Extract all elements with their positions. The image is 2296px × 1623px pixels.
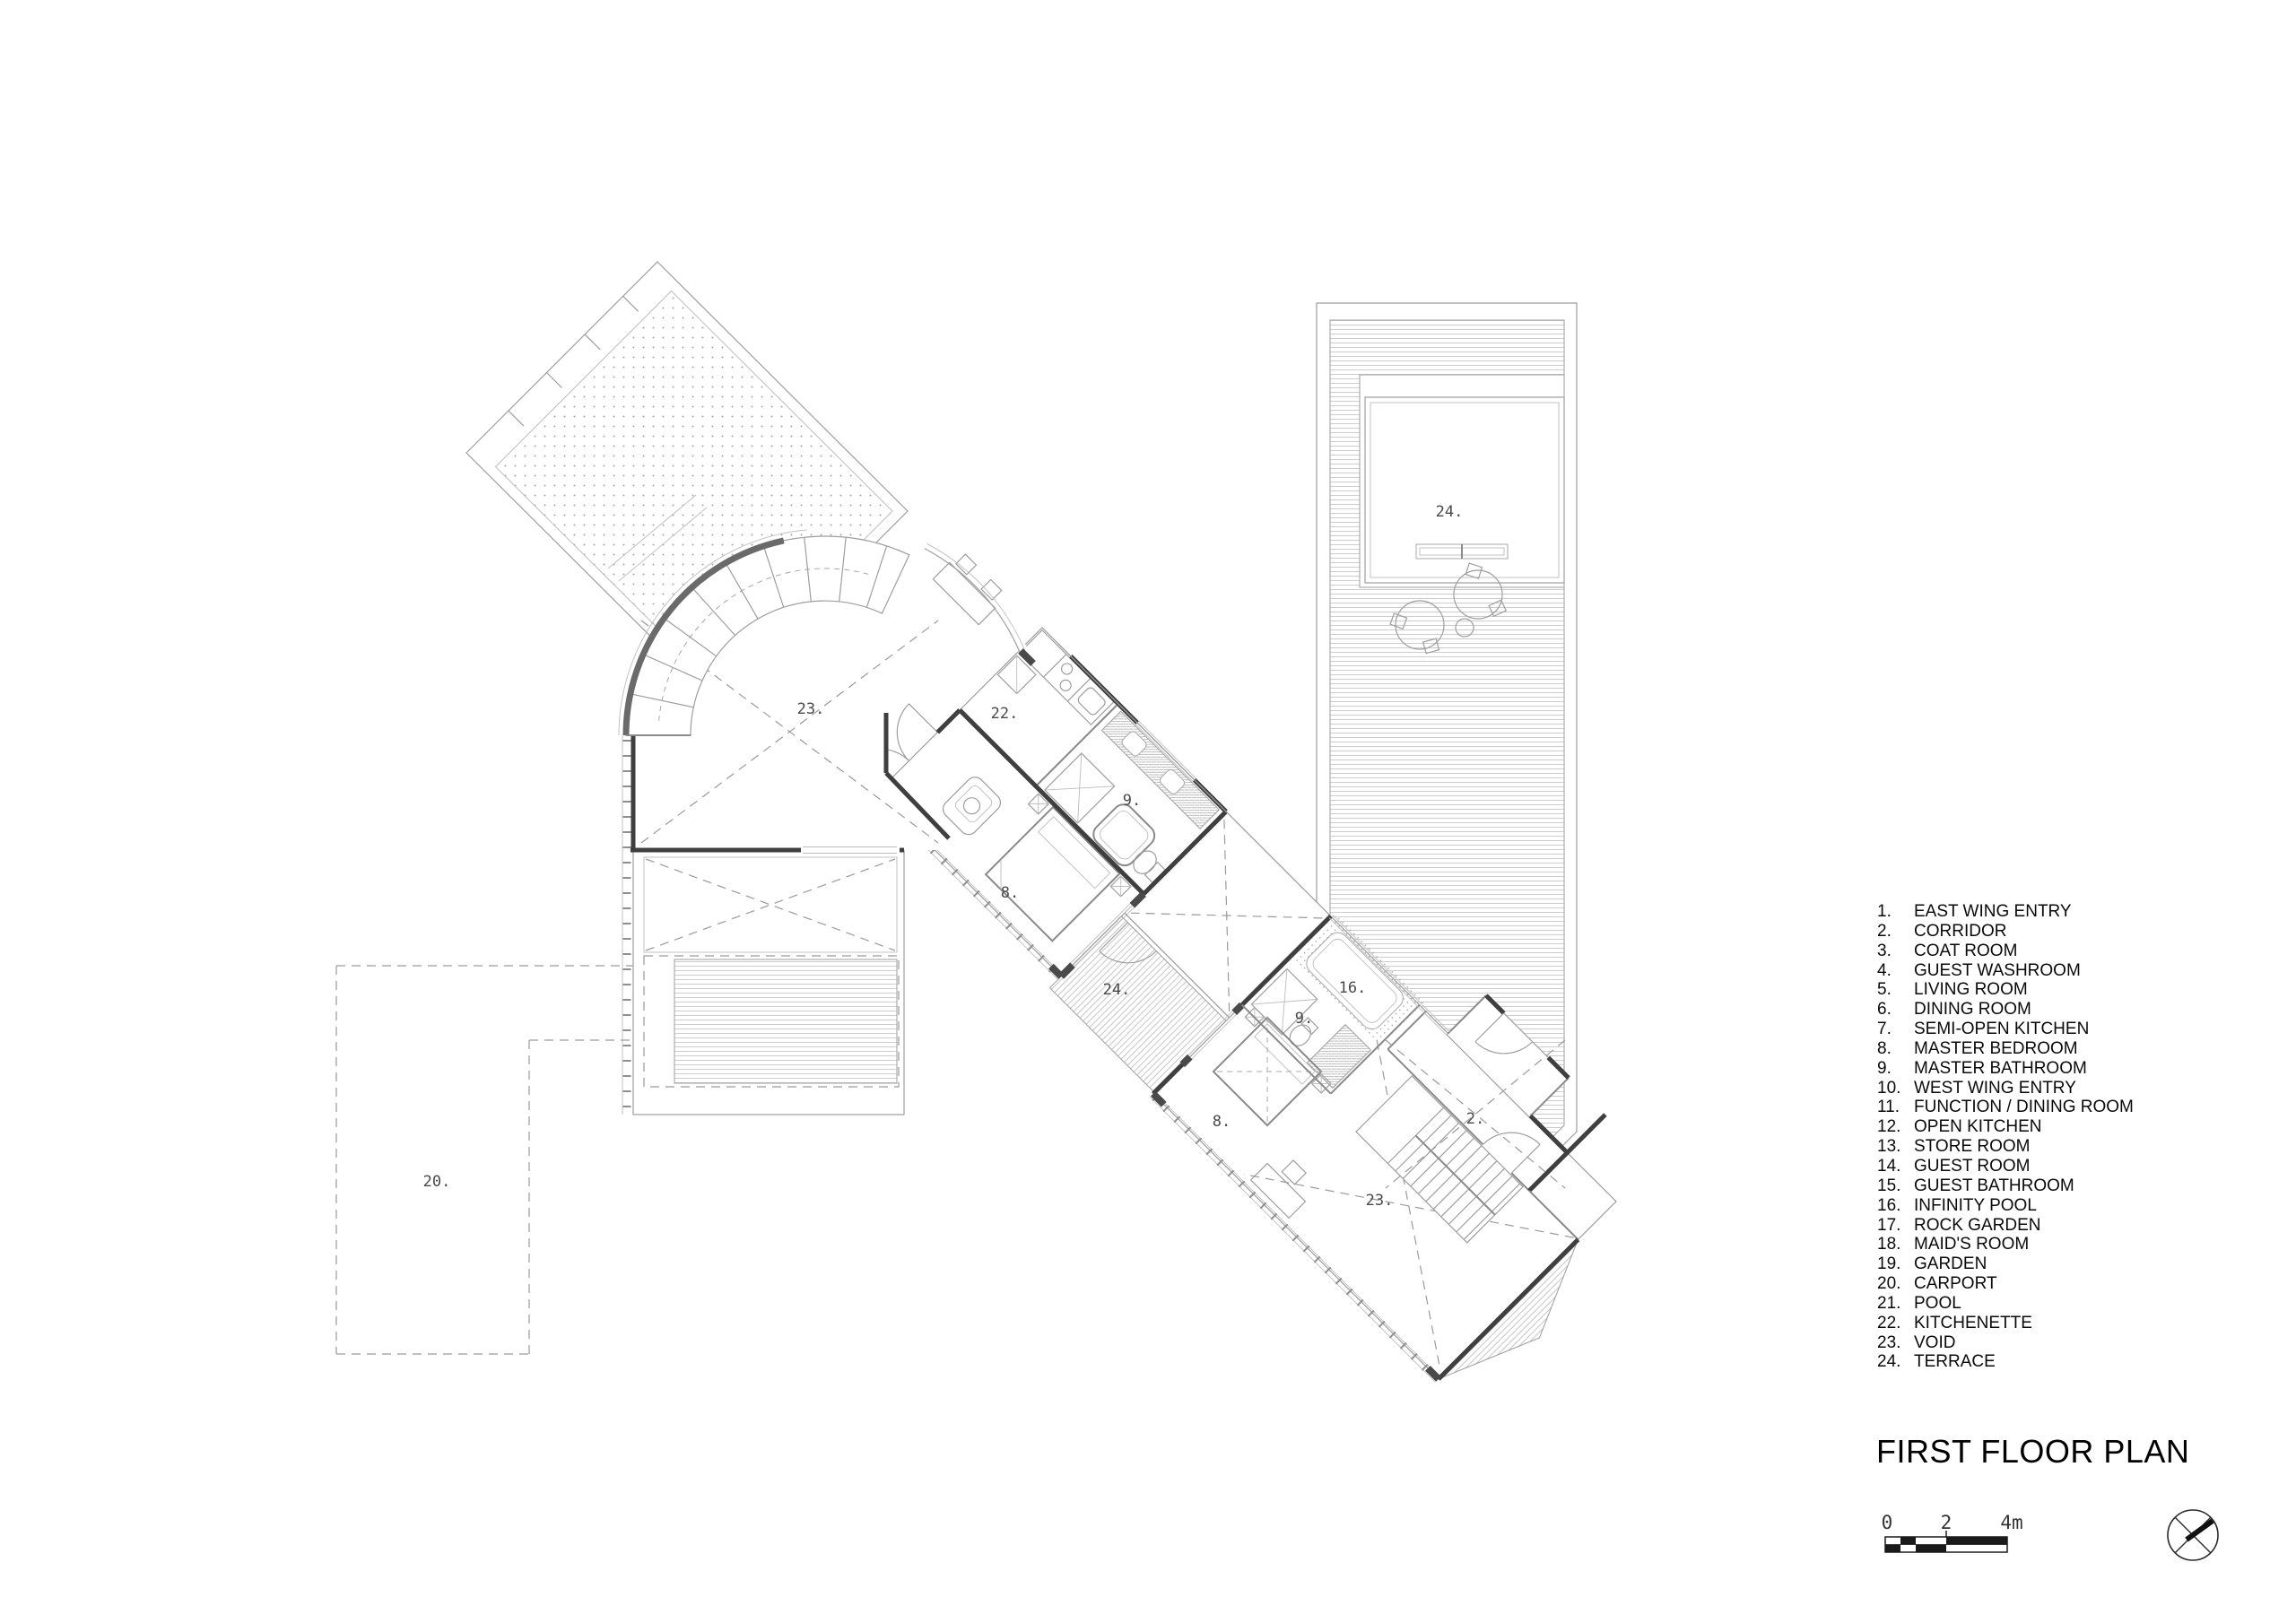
legend-item-number: 16. bbox=[1877, 1196, 1914, 1216]
legend-item-label: CARPORT bbox=[1914, 1274, 1997, 1294]
legend-item-label: GUEST BATHROOM bbox=[1914, 1176, 2074, 1196]
legend-item-number: 12. bbox=[1877, 1117, 1914, 1137]
legend-item-number: 15. bbox=[1877, 1176, 1914, 1196]
room-label-terrace-central: 24. bbox=[1103, 981, 1131, 999]
legend-item-label: FUNCTION / DINING ROOM bbox=[1914, 1098, 2134, 1117]
legend-item: 15.GUEST BATHROOM bbox=[1877, 1176, 2134, 1196]
legend-item-label: MAID'S ROOM bbox=[1914, 1235, 2029, 1254]
room-label-master-bathroom-lower: 9. bbox=[1295, 1010, 1313, 1028]
legend-item: 5.LIVING ROOM bbox=[1877, 980, 2134, 1000]
legend-item: 2.CORRIDOR bbox=[1877, 922, 2134, 942]
legend-item-number: 20. bbox=[1877, 1274, 1914, 1294]
legend-item-label: KITCHENETTE bbox=[1914, 1314, 2032, 1333]
legend-item-number: 10. bbox=[1877, 1079, 1914, 1098]
legend-item-number: 2. bbox=[1877, 922, 1914, 942]
terrace-planter bbox=[1416, 544, 1508, 559]
legend-item-label: EAST WING ENTRY bbox=[1914, 902, 2072, 922]
scale-bar: 0 2 4m bbox=[1882, 1512, 2023, 1552]
legend-item: 21.POOL bbox=[1877, 1294, 2134, 1314]
room-label-terrace-right: 24. bbox=[1436, 503, 1464, 521]
legend-item-label: GUEST ROOM bbox=[1914, 1157, 2031, 1176]
legend-item-label: DINING ROOM bbox=[1914, 1000, 2031, 1020]
legend-item-number: 1. bbox=[1877, 902, 1914, 922]
legend-item-label: VOID bbox=[1914, 1333, 1955, 1353]
legend-item-label: MASTER BATHROOM bbox=[1914, 1059, 2087, 1079]
legend-item-label: COAT ROOM bbox=[1914, 942, 2017, 961]
legend-item-number: 11. bbox=[1877, 1098, 1914, 1117]
carport-outline bbox=[336, 966, 633, 1354]
legend-item-label: OPEN KITCHEN bbox=[1914, 1117, 2042, 1137]
legend-item-label: POOL bbox=[1914, 1294, 1961, 1314]
legend-item-label: LIVING ROOM bbox=[1914, 980, 2028, 1000]
room-label-master-bedroom-lower: 8. bbox=[1213, 1113, 1231, 1131]
page-title: FIRST FLOOR PLAN bbox=[1876, 1433, 2189, 1471]
legend-item: 13.STORE ROOM bbox=[1877, 1137, 2134, 1157]
legend-item: 6.DINING ROOM bbox=[1877, 1000, 2134, 1020]
legend-item: 11.FUNCTION / DINING ROOM bbox=[1877, 1098, 2134, 1117]
legend-item-number: 9. bbox=[1877, 1059, 1914, 1079]
legend-item: 8.MASTER BEDROOM bbox=[1877, 1039, 2134, 1059]
legend-item-label: GARDEN bbox=[1914, 1254, 1987, 1274]
room-label-kitchenette: 22. bbox=[991, 705, 1019, 723]
legend-item: 23.VOID bbox=[1877, 1333, 2134, 1353]
legend-item-number: 17. bbox=[1877, 1216, 1914, 1236]
legend: 1.EAST WING ENTRY 2.CORRIDOR 3.COAT ROOM… bbox=[1877, 902, 2134, 1372]
legend-item: 22.KITCHENETTE bbox=[1877, 1314, 2134, 1333]
legend-item-label: SEMI-OPEN KITCHEN bbox=[1914, 1020, 2089, 1039]
legend-item-number: 14. bbox=[1877, 1157, 1914, 1176]
legend-item-number: 21. bbox=[1877, 1294, 1914, 1314]
floor-plan-drawing: 23. 22. 9. 8. 24. 24. 8. 9. 16. 2. 23. 2… bbox=[0, 0, 2296, 1623]
legend-item-number: 22. bbox=[1877, 1314, 1914, 1333]
legend-item-number: 5. bbox=[1877, 980, 1914, 1000]
legend-item: 3.COAT ROOM bbox=[1877, 942, 2134, 961]
legend-item-label: STORE ROOM bbox=[1914, 1137, 2031, 1157]
legend-item: 9.MASTER BATHROOM bbox=[1877, 1059, 2134, 1079]
legend-item: 17.ROCK GARDEN bbox=[1877, 1216, 2134, 1236]
room-label-master-bathroom-upper: 9. bbox=[1123, 792, 1141, 810]
legend-item-label: INFINITY POOL bbox=[1914, 1196, 2037, 1216]
legend-item-label: WEST WING ENTRY bbox=[1914, 1079, 2076, 1098]
room-label-void-upper: 23. bbox=[797, 700, 825, 718]
legend-item: 4.GUEST WASHROOM bbox=[1877, 961, 2134, 981]
legend-item-number: 18. bbox=[1877, 1235, 1914, 1254]
legend-item: 18.MAID'S ROOM bbox=[1877, 1235, 2134, 1254]
legend-item-label: MASTER BEDROOM bbox=[1914, 1039, 2078, 1059]
legend-item: 24.TERRACE bbox=[1877, 1352, 2134, 1372]
legend-item-number: 23. bbox=[1877, 1333, 1914, 1353]
scale-tick-4m: 4m bbox=[2000, 1512, 2022, 1533]
legend-item: 12.OPEN KITCHEN bbox=[1877, 1117, 2134, 1137]
legend-item-number: 8. bbox=[1877, 1039, 1914, 1059]
legend-item-number: 13. bbox=[1877, 1137, 1914, 1157]
room-label-corridor: 2. bbox=[1466, 1110, 1484, 1128]
room-label-infinity-pool: 16. bbox=[1339, 979, 1367, 997]
room-label-master-bedroom-upper: 8. bbox=[1001, 884, 1019, 902]
legend-item-number: 24. bbox=[1877, 1352, 1914, 1372]
room-label-carport: 20. bbox=[423, 1173, 451, 1191]
legend-item: 20.CARPORT bbox=[1877, 1274, 2134, 1294]
legend-item-number: 19. bbox=[1877, 1254, 1914, 1274]
scale-tick-2: 2 bbox=[1941, 1512, 1952, 1533]
legend-item: 14.GUEST ROOM bbox=[1877, 1157, 2134, 1176]
scale-tick-0: 0 bbox=[1882, 1512, 1893, 1533]
legend-item-label: GUEST WASHROOM bbox=[1914, 961, 2081, 981]
legend-item-label: CORRIDOR bbox=[1914, 922, 2006, 942]
legend-item: 1.EAST WING ENTRY bbox=[1877, 902, 2134, 922]
legend-item-number: 7. bbox=[1877, 1020, 1914, 1039]
legend-item-number: 4. bbox=[1877, 961, 1914, 981]
legend-item: 16.INFINITY POOL bbox=[1877, 1196, 2134, 1216]
legend-item: 10.WEST WING ENTRY bbox=[1877, 1079, 2134, 1098]
legend-item-label: TERRACE bbox=[1914, 1352, 1996, 1372]
north-arrow-icon bbox=[2168, 1510, 2218, 1560]
floor-plan-sheet: { "header": { "title": "FIRST FLOOR PLAN… bbox=[0, 0, 2296, 1623]
room-label-void-lower: 23. bbox=[1366, 1192, 1394, 1210]
legend-item: 7.SEMI-OPEN KITCHEN bbox=[1877, 1020, 2134, 1039]
legend-item-number: 6. bbox=[1877, 1000, 1914, 1020]
legend-item-label: ROCK GARDEN bbox=[1914, 1216, 2040, 1236]
legend-item: 19.GARDEN bbox=[1877, 1254, 2134, 1274]
legend-item-number: 3. bbox=[1877, 942, 1914, 961]
